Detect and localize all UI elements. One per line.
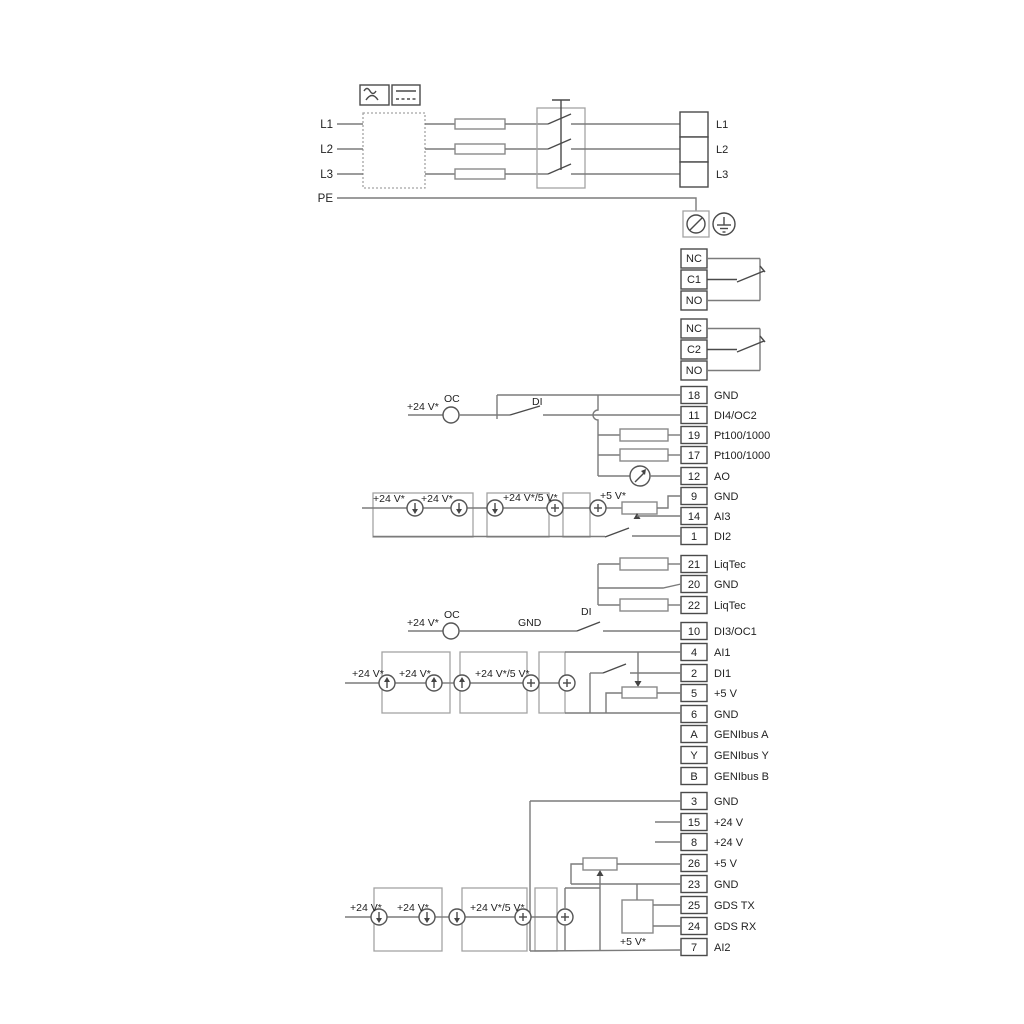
power-input-section: L1 L2 L3 PE <box>318 85 735 237</box>
svg-text:23: 23 <box>688 879 700 891</box>
svg-text:+24 V: +24 V <box>714 817 744 829</box>
svg-text:26: 26 <box>688 858 700 870</box>
terminal-row: 26+5 V <box>681 855 738 872</box>
svg-text:C2: C2 <box>687 344 701 356</box>
temp-sensor-resistor <box>620 429 668 441</box>
svg-text:AI2: AI2 <box>714 942 731 954</box>
svg-text:GND: GND <box>714 709 739 721</box>
svg-text:GND: GND <box>714 491 739 503</box>
fuse <box>455 169 505 179</box>
svg-text:+24 V*: +24 V* <box>352 668 384 680</box>
wire <box>606 693 622 713</box>
svg-text:NC: NC <box>686 253 702 265</box>
switch-contact <box>603 664 626 673</box>
svg-text:15: 15 <box>688 817 700 829</box>
terminal-row: YGENIbus Y <box>681 747 769 764</box>
terminal-row: 6GND <box>681 706 739 723</box>
output-label: L1 <box>716 119 728 131</box>
svg-text:19: 19 <box>688 430 700 442</box>
potentiometer <box>622 502 657 514</box>
terminal-group-liqtec: 21LiqTec 20GND 22LiqTec <box>598 556 746 614</box>
terminal-row: 14AI3 <box>681 508 731 525</box>
svg-text:18: 18 <box>688 390 700 402</box>
input-label: PE <box>318 193 334 205</box>
voltage-source-icon <box>559 675 575 691</box>
svg-text:14: 14 <box>688 511 700 523</box>
svg-text:3: 3 <box>691 796 697 808</box>
drive-filter-box <box>363 113 425 188</box>
svg-text:17: 17 <box>688 450 700 462</box>
cluster-ai1: +24 V* +24 V* +24 V*/5 V* <box>345 652 681 713</box>
svg-text:5: 5 <box>691 688 697 700</box>
svg-text:7: 7 <box>691 942 697 954</box>
switch-contact <box>577 622 600 631</box>
switch-contact <box>548 164 571 174</box>
current-source-icon <box>454 675 470 691</box>
svg-text:NO: NO <box>686 295 703 307</box>
terminal-row: 23GND <box>681 876 739 893</box>
v24-label: +24 V* <box>407 401 439 413</box>
current-source-icon <box>449 909 465 925</box>
main-contactor <box>537 100 585 188</box>
terminal-row: 8+24 V <box>681 834 744 851</box>
svg-text:GND: GND <box>518 617 542 629</box>
svg-text:+24 V*: +24 V* <box>350 902 382 914</box>
terminal-row: 25GDS TX <box>681 897 755 914</box>
svg-text:Pt100/1000: Pt100/1000 <box>714 450 770 462</box>
terminal-row: 22LiqTec <box>681 597 746 614</box>
terminal-row: 9GND <box>681 488 739 505</box>
oc-label: OC <box>444 393 460 405</box>
svg-text:GND: GND <box>714 390 739 402</box>
open-collector-icon <box>443 407 459 423</box>
wire <box>571 864 583 884</box>
input-label: L1 <box>320 119 333 131</box>
power-terminal-block: L1 L2 L3 <box>680 112 728 187</box>
temp-sensor-resistor <box>620 449 668 461</box>
terminal-group-io2: 10DI3/OC1 4AI1 2DI1 5+5 V 6GND AGENIbus … <box>681 623 769 785</box>
terminal-row: 12AO <box>681 468 730 485</box>
svg-text:1: 1 <box>691 531 697 543</box>
svg-text:DI3/OC1: DI3/OC1 <box>714 626 757 638</box>
svg-text:NO: NO <box>686 365 703 377</box>
wire-with-hop <box>593 395 598 476</box>
fuse <box>455 119 505 129</box>
svg-text:NC: NC <box>686 323 702 335</box>
cluster-ai3: +24 V* +24 V* +24 V*/5 V* +5 V* <box>362 490 681 537</box>
svg-text:+5 V: +5 V <box>714 688 738 700</box>
terminal-row: AGENIbus A <box>681 726 769 743</box>
svg-text:AO: AO <box>714 471 730 483</box>
svg-text:DI1: DI1 <box>714 668 731 680</box>
svg-text:Pt100/1000: Pt100/1000 <box>714 430 770 442</box>
wire <box>657 496 681 508</box>
terminal-row: 21LiqTec <box>681 556 746 573</box>
svg-text:+24 V*: +24 V* <box>421 493 453 505</box>
open-collector-icon <box>443 623 459 639</box>
wiper-arrow <box>635 681 642 687</box>
svg-text:11: 11 <box>688 410 699 422</box>
svg-text:22: 22 <box>688 600 700 612</box>
svg-text:LiqTec: LiqTec <box>714 559 746 571</box>
svg-text:+5 V*: +5 V* <box>600 490 626 502</box>
terminal-row: 17Pt100/1000 <box>681 447 770 464</box>
terminal-row: 18GND <box>681 387 739 404</box>
svg-text:DI: DI <box>581 606 592 618</box>
terminal-row: 15+24 V <box>681 814 744 831</box>
svg-text:C1: C1 <box>687 274 701 286</box>
svg-text:GND: GND <box>714 579 739 591</box>
terminal-row: 19Pt100/1000 <box>681 427 770 444</box>
gds-sensor-box <box>622 900 653 933</box>
relay-block-1: NC C1 NO <box>681 249 765 310</box>
switch-contact <box>548 139 571 149</box>
svg-text:21: 21 <box>688 559 700 571</box>
earth-icon <box>713 213 735 235</box>
svg-text:DI4/OC2: DI4/OC2 <box>714 410 757 422</box>
terminal-row: BGENIbus B <box>681 768 769 785</box>
current-source-icon <box>451 500 467 516</box>
svg-text:+24 V*/5 V*: +24 V*/5 V* <box>470 902 525 914</box>
potentiometer <box>622 687 657 698</box>
svg-text:+5 V*: +5 V* <box>620 936 646 948</box>
svg-text:OC: OC <box>444 609 460 621</box>
potentiometer <box>583 858 617 870</box>
svg-text:Y: Y <box>690 750 698 762</box>
output-label: L2 <box>716 144 728 156</box>
terminal-row: 2DI1 <box>681 665 731 682</box>
wire <box>530 950 681 951</box>
svg-text:GND: GND <box>714 879 739 891</box>
svg-text:+24 V: +24 V <box>714 837 744 849</box>
svg-text:AI3: AI3 <box>714 511 731 523</box>
signal-box <box>563 493 590 537</box>
svg-text:2: 2 <box>691 668 697 680</box>
svg-text:B: B <box>690 771 697 783</box>
terminal-row: 3GND <box>681 793 739 810</box>
wiper-arrow <box>597 870 604 876</box>
terminal-row: 1DI2 <box>681 528 731 545</box>
svg-text:DI2: DI2 <box>714 531 731 543</box>
terminal-row: 7AI2 <box>681 939 731 956</box>
svg-text:25: 25 <box>688 900 700 912</box>
terminal-row: 4AI1 <box>681 644 731 661</box>
svg-text:GENIbus Y: GENIbus Y <box>714 750 769 762</box>
svg-text:6: 6 <box>691 709 697 721</box>
terminal-group-io1: 18GND 11DI4/OC2 19Pt100/1000 17Pt100/100… <box>681 387 770 545</box>
svg-text:+24 V*/5 V*: +24 V*/5 V* <box>503 492 558 504</box>
svg-text:A: A <box>690 729 698 741</box>
terminal-row: 24GDS RX <box>681 918 757 935</box>
svg-text:20: 20 <box>688 579 700 591</box>
svg-text:LiqTec: LiqTec <box>714 600 746 612</box>
svg-text:+24 V*: +24 V* <box>407 617 439 629</box>
switch-contact <box>548 114 571 124</box>
svg-text:+24 V*/5 V*: +24 V*/5 V* <box>475 668 530 680</box>
svg-text:AI1: AI1 <box>714 647 731 659</box>
switch-contact <box>510 406 540 415</box>
output-label: L3 <box>716 169 728 181</box>
terminal-row: 20GND <box>681 576 739 593</box>
cluster-ai2-gds: +24 V* +24 V* +24 V*/5 V* +5 V* <box>345 801 681 951</box>
input-label: L3 <box>320 169 333 181</box>
svg-text:GND: GND <box>714 796 739 808</box>
svg-text:GENIbus A: GENIbus A <box>714 729 769 741</box>
svg-text:+24 V*: +24 V* <box>399 668 431 680</box>
terminal-row: 10DI3/OC1 <box>681 623 757 640</box>
switch-contact <box>605 528 629 537</box>
wire <box>598 584 681 588</box>
signal-box <box>535 888 557 951</box>
fuse <box>455 144 505 154</box>
svg-text:24: 24 <box>688 921 700 933</box>
svg-text:+5 V: +5 V <box>714 858 738 870</box>
current-source-icon <box>487 500 503 516</box>
svg-text:10: 10 <box>688 626 700 638</box>
input-label: L2 <box>320 144 333 156</box>
dc-symbol-icon <box>392 85 420 105</box>
liqtec-sensor-resistor <box>620 599 668 611</box>
terminal-row: 5+5 V <box>681 685 738 702</box>
liqtec-sensor-resistor <box>620 558 668 570</box>
svg-text:4: 4 <box>691 647 697 659</box>
ac-symbol-icon <box>360 85 389 105</box>
terminal-row: 11DI4/OC2 <box>681 407 757 424</box>
wiring-diagram: L1 L2 L3 PE <box>0 0 1024 1024</box>
analog-output-meter-icon <box>630 466 650 486</box>
svg-text:9: 9 <box>691 491 697 503</box>
pe-wire <box>337 198 696 211</box>
svg-text:8: 8 <box>691 837 697 849</box>
svg-text:GENIbus B: GENIbus B <box>714 771 769 783</box>
pe-screw-terminal <box>683 211 709 237</box>
svg-text:GDS TX: GDS TX <box>714 900 755 912</box>
voltage-source-icon <box>590 500 606 516</box>
svg-text:GDS RX: GDS RX <box>714 921 757 933</box>
terminal-group-io3: 3GND 15+24 V 8+24 V 26+5 V 23GND 25GDS T… <box>681 793 757 956</box>
voltage-source-icon <box>557 909 573 925</box>
svg-text:12: 12 <box>688 471 700 483</box>
svg-text:+24 V*: +24 V* <box>397 902 429 914</box>
io1-wiring: DI +24 V* OC <box>407 393 681 486</box>
svg-text:+24 V*: +24 V* <box>373 493 405 505</box>
relay-block-2: NC C2 NO <box>681 319 765 380</box>
